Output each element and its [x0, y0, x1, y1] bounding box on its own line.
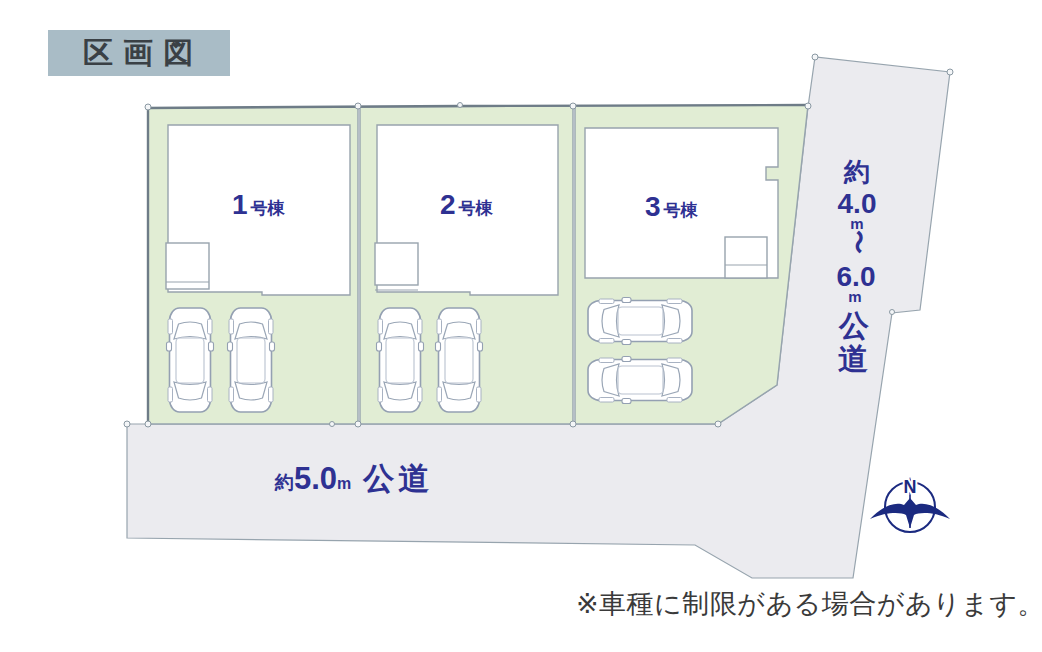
- road-right-line-3: 〜: [845, 230, 872, 254]
- car-icon: [588, 357, 692, 404]
- road-right-line-7: 道: [838, 342, 868, 375]
- lot-3-suffix: 号棟: [663, 201, 699, 220]
- lot-1-number: 1: [232, 189, 248, 220]
- compass-bird-icon: [870, 498, 950, 528]
- lot-2-number: 2: [440, 189, 456, 220]
- plot-map-page: 区画図: [0, 0, 1042, 652]
- lot-2-suffix: 号棟: [458, 199, 494, 218]
- car-icon: [167, 308, 214, 412]
- road-right-line-0: 約: [843, 157, 870, 187]
- car-icon: [228, 308, 275, 412]
- house-3-annex: [725, 237, 767, 278]
- house-2-annex: [375, 243, 418, 285]
- road-bottom-name: 公道: [362, 461, 433, 496]
- compass: N: [870, 477, 950, 532]
- car-icon: [588, 298, 692, 345]
- road-bottom-unit: m: [337, 475, 351, 492]
- site-plan-diagram: 1号棟 2号棟 3号棟 約 4.0 m 〜 6.0 m 公 道 約5.0m公道 …: [0, 0, 1042, 652]
- lot-3-number: 3: [645, 191, 661, 222]
- road-bottom-value: 5.0: [294, 461, 337, 496]
- road-right-line-6: 公: [838, 309, 870, 342]
- road-right-line-5: m: [848, 288, 861, 305]
- compass-north-label: N: [904, 477, 917, 497]
- car-icon: [377, 308, 424, 412]
- lot-1-suffix: 号棟: [250, 199, 286, 218]
- car-icon: [436, 308, 483, 412]
- vehicle-restriction-note: ※車種に制限がある場合があります。: [576, 586, 1042, 622]
- road-bottom-prefix: 約: [274, 472, 294, 493]
